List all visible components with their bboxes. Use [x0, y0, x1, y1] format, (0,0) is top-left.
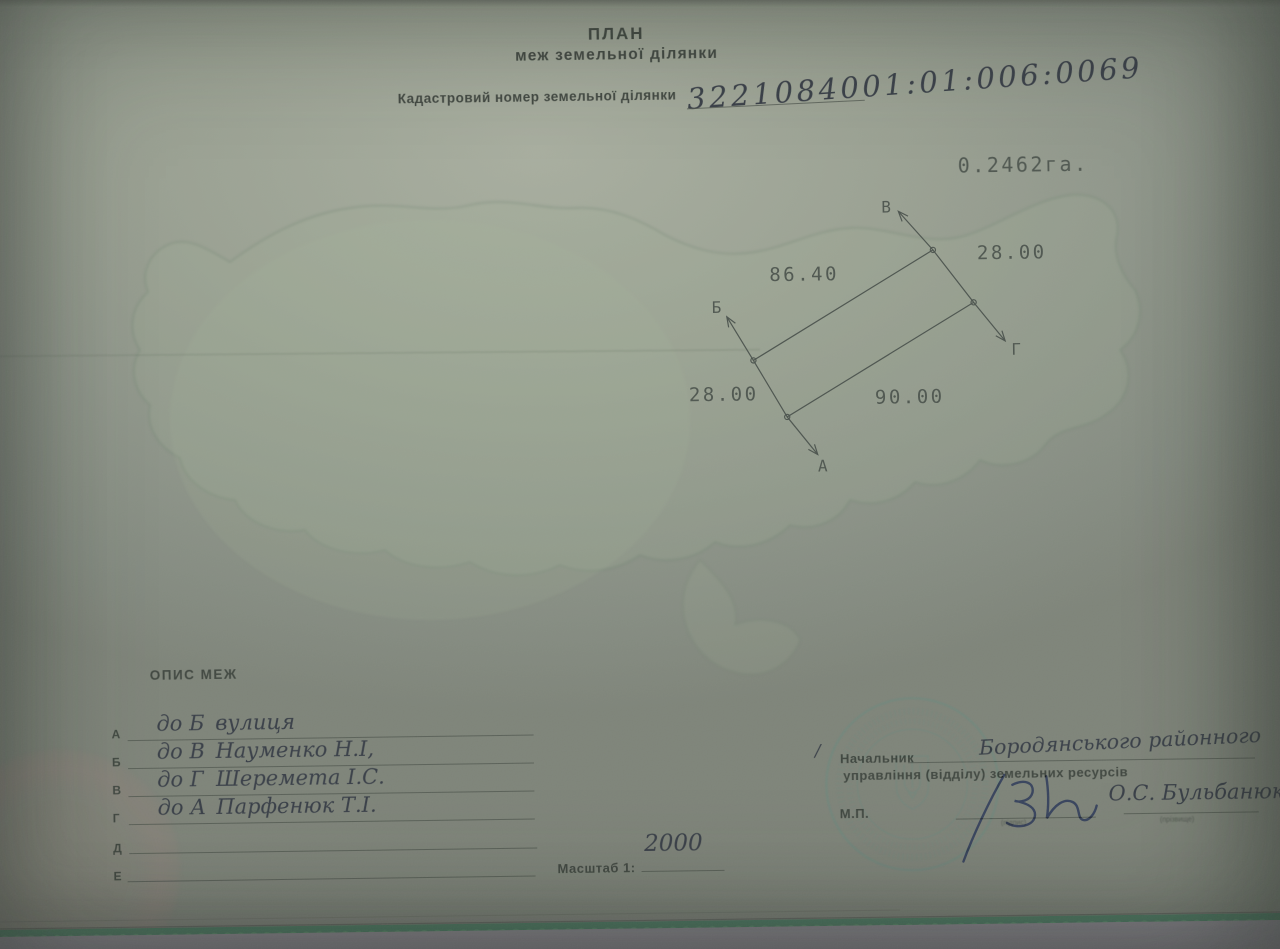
scanned-land-plan-photo: ПЛАН меж земельної ділянки Кадастровий н…: [0, 0, 1280, 949]
document-subtitle: меж земельної ділянки: [515, 45, 718, 66]
corner-label-a: А: [818, 456, 828, 475]
row-dir-v: до Г: [157, 767, 209, 792]
dimension-86-40: 86.40: [769, 263, 839, 286]
corner-label-b: Б: [712, 298, 722, 317]
boundary-arrow-a: [787, 417, 818, 455]
row-entry-g: до А Парфенюк Т.І.: [157, 793, 376, 820]
name-caption: (прізвище): [1160, 816, 1194, 823]
row-name-b: Науменко Н.І,: [215, 737, 374, 763]
dimension-28-00-left: 28.00: [689, 383, 759, 406]
row-line-d: [129, 847, 537, 854]
row-name-g: Парфенюк Т.І.: [216, 793, 377, 819]
row-name-a: вулиця: [215, 710, 295, 735]
corner-label-v: В: [881, 197, 891, 216]
photo-top-shadow: [0, 0, 1280, 7]
document-bottom-edge: [0, 900, 1280, 949]
name-handwritten: О.С. Бульбанюк: [1108, 779, 1280, 805]
row-entry-b: до В Науменко Н.І,: [157, 737, 375, 764]
row-letter-b: Б: [112, 755, 121, 769]
boundary-arrow-v: [898, 211, 933, 250]
row-letter-a: А: [111, 727, 120, 741]
boundary-arrow-g: [974, 302, 1006, 341]
document-content: ПЛАН меж земельної ділянки Кадастровий н…: [0, 0, 1280, 949]
corner-label-g: Г: [1011, 340, 1021, 359]
dimension-28-00-right: 28.00: [977, 241, 1047, 264]
row-entry-v: до Г Шеремета І.С.: [157, 765, 385, 792]
row-dir-g: до А: [157, 795, 209, 820]
document-title: ПЛАН: [588, 24, 645, 45]
plot-area-value: 0.2462га.: [958, 152, 1089, 178]
arrowhead-b: [727, 317, 736, 328]
row-line-g: [129, 819, 535, 826]
cadastral-number-handwritten: 3221084001:01:006:0069: [686, 50, 1144, 116]
name-line: [1124, 811, 1259, 814]
row-name-v: Шеремета І.С.: [216, 765, 385, 791]
boundary-arrow-b: [727, 316, 754, 360]
handwritten-signature: [934, 753, 1116, 871]
signature-stroke-slash: [962, 775, 1005, 862]
row-letter-e: Е: [113, 869, 122, 883]
signature-stroke-b: [1046, 776, 1097, 821]
scale-line: [642, 870, 725, 872]
row-line-e: [128, 875, 536, 882]
seal-trident-emblem: [896, 756, 929, 809]
signature-stroke-z: [1006, 782, 1035, 827]
row-letter-d: Д: [113, 841, 122, 855]
row-entry-a: до Б вулиця: [156, 710, 295, 736]
scale-value-handwritten: 2000: [644, 830, 703, 857]
scale-label: Масштаб 1:: [557, 860, 635, 876]
dimension-90-00: 90.00: [875, 386, 945, 409]
row-letter-g: Г: [113, 811, 121, 825]
boundaries-heading: ОПИС МЕЖ: [150, 667, 238, 683]
plot-boundary-diagram: 86.40 28.00 28.00 90.00 Б В Г А: [684, 182, 1058, 487]
row-dir-b: до В: [157, 739, 209, 764]
cadastral-number-label: Кадастровий номер земельної ділянки: [398, 87, 677, 106]
row-dir-a: до Б: [156, 711, 208, 736]
row-letter-v: В: [112, 783, 121, 797]
